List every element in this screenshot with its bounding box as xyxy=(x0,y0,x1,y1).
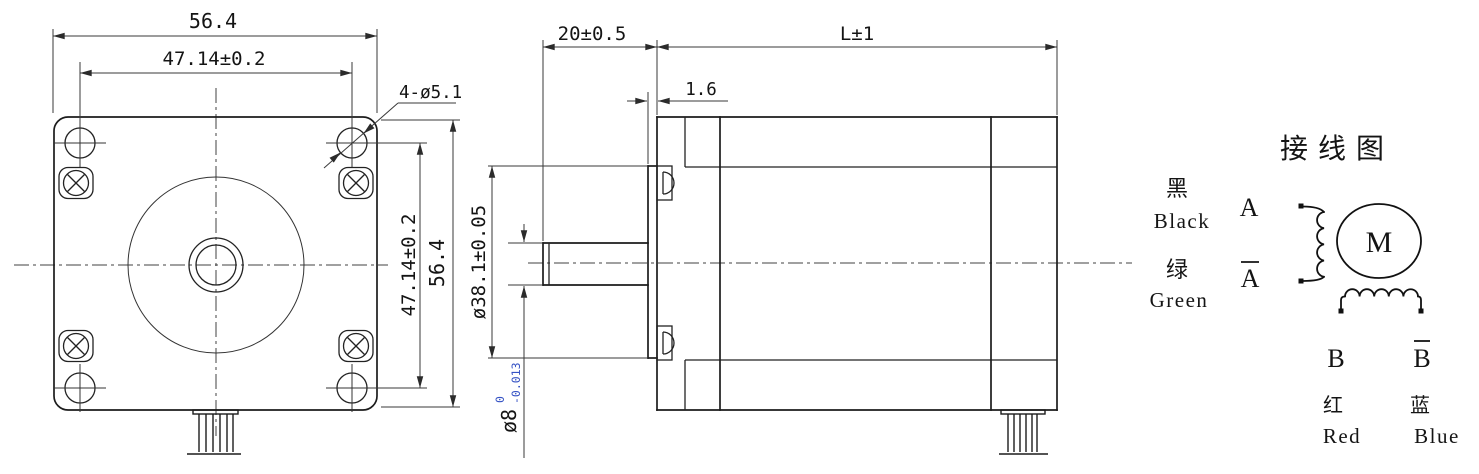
leader-arrow xyxy=(333,153,341,160)
label-green-cn: 绿 xyxy=(1166,257,1188,282)
motor-label: M xyxy=(1366,226,1393,259)
screw-head xyxy=(339,168,373,199)
label-blue-cn: 蓝 xyxy=(1410,394,1430,417)
mounting-hole xyxy=(54,364,106,412)
side-screw-top xyxy=(657,166,674,200)
label-black-cn: 黑 xyxy=(1166,176,1188,201)
phase-a-winding xyxy=(1299,204,1325,284)
leader-arrow xyxy=(364,127,372,134)
terminal-b-bar: B xyxy=(1413,344,1430,373)
phase-b-winding xyxy=(1339,289,1424,313)
front-view-dimensions: 56.4 47.14±0.2 4-ø5.1 47.14±0.2 56.4 xyxy=(53,9,462,407)
screw-head xyxy=(59,331,93,362)
screw-head xyxy=(59,168,93,199)
shaft-tolerance-lower: -0.013 xyxy=(509,362,523,404)
side-view-dimensions: 20±0.5 L±1 1.6 ø38.1±0.05 ø8 0 -0.013 xyxy=(468,23,1057,458)
dim-text-pilot-thickness: 1.6 xyxy=(685,80,717,100)
terminal-a: A xyxy=(1240,193,1259,222)
dim-text-width-outer: 56.4 xyxy=(189,9,237,33)
shaft xyxy=(543,243,648,285)
dim-text-hole-spacing-v: 47.14±0.2 xyxy=(398,214,420,317)
stepper-motor-drawing-page: 56.4 47.14±0.2 4-ø5.1 47.14±0.2 56.4 xyxy=(0,0,1479,474)
engineering-drawing: 56.4 47.14±0.2 4-ø5.1 47.14±0.2 56.4 xyxy=(0,0,1479,474)
dim-text-body-length: L±1 xyxy=(840,23,874,45)
label-green-en: Green xyxy=(1150,288,1209,312)
label-red-en: Red xyxy=(1323,424,1361,448)
front-view: 56.4 47.14±0.2 4-ø5.1 47.14±0.2 56.4 xyxy=(14,9,462,454)
dim-text-shaft-dia: ø8 xyxy=(497,409,521,433)
terminal-a-bar: A xyxy=(1241,264,1260,293)
leader-line xyxy=(324,103,398,168)
terminal-dot xyxy=(1339,309,1344,314)
dim-text-shaft-length: 20±0.5 xyxy=(558,23,627,45)
terminal-dot xyxy=(1419,309,1424,314)
shaft-tolerance-upper: 0 xyxy=(493,396,507,403)
wiring-diagram: 接线图 黑 Black A 绿 Green A M B B 红 xyxy=(1150,133,1460,448)
wiring-title: 接线图 xyxy=(1280,133,1394,165)
mounting-hole xyxy=(54,119,106,167)
dim-text-height-outer: 56.4 xyxy=(425,239,449,287)
dim-text-holes-callout: 4-ø5.1 xyxy=(399,83,462,103)
label-black-en: Black xyxy=(1154,209,1210,233)
side-wire-bundle xyxy=(999,410,1048,454)
pilot-boss xyxy=(648,166,657,358)
terminal-b: B xyxy=(1327,344,1344,373)
front-wire-bundle xyxy=(187,410,241,454)
side-view: 20±0.5 L±1 1.6 ø38.1±0.05 ø8 0 -0.013 xyxy=(468,23,1132,458)
dim-text-pilot-dia: ø38.1±0.05 xyxy=(468,205,490,319)
label-blue-en: Blue xyxy=(1414,424,1460,448)
screw-head xyxy=(339,331,373,362)
dim-text-hole-spacing-h: 47.14±0.2 xyxy=(163,48,266,70)
side-screw-bottom xyxy=(657,326,674,360)
label-red-cn: 红 xyxy=(1323,394,1343,417)
